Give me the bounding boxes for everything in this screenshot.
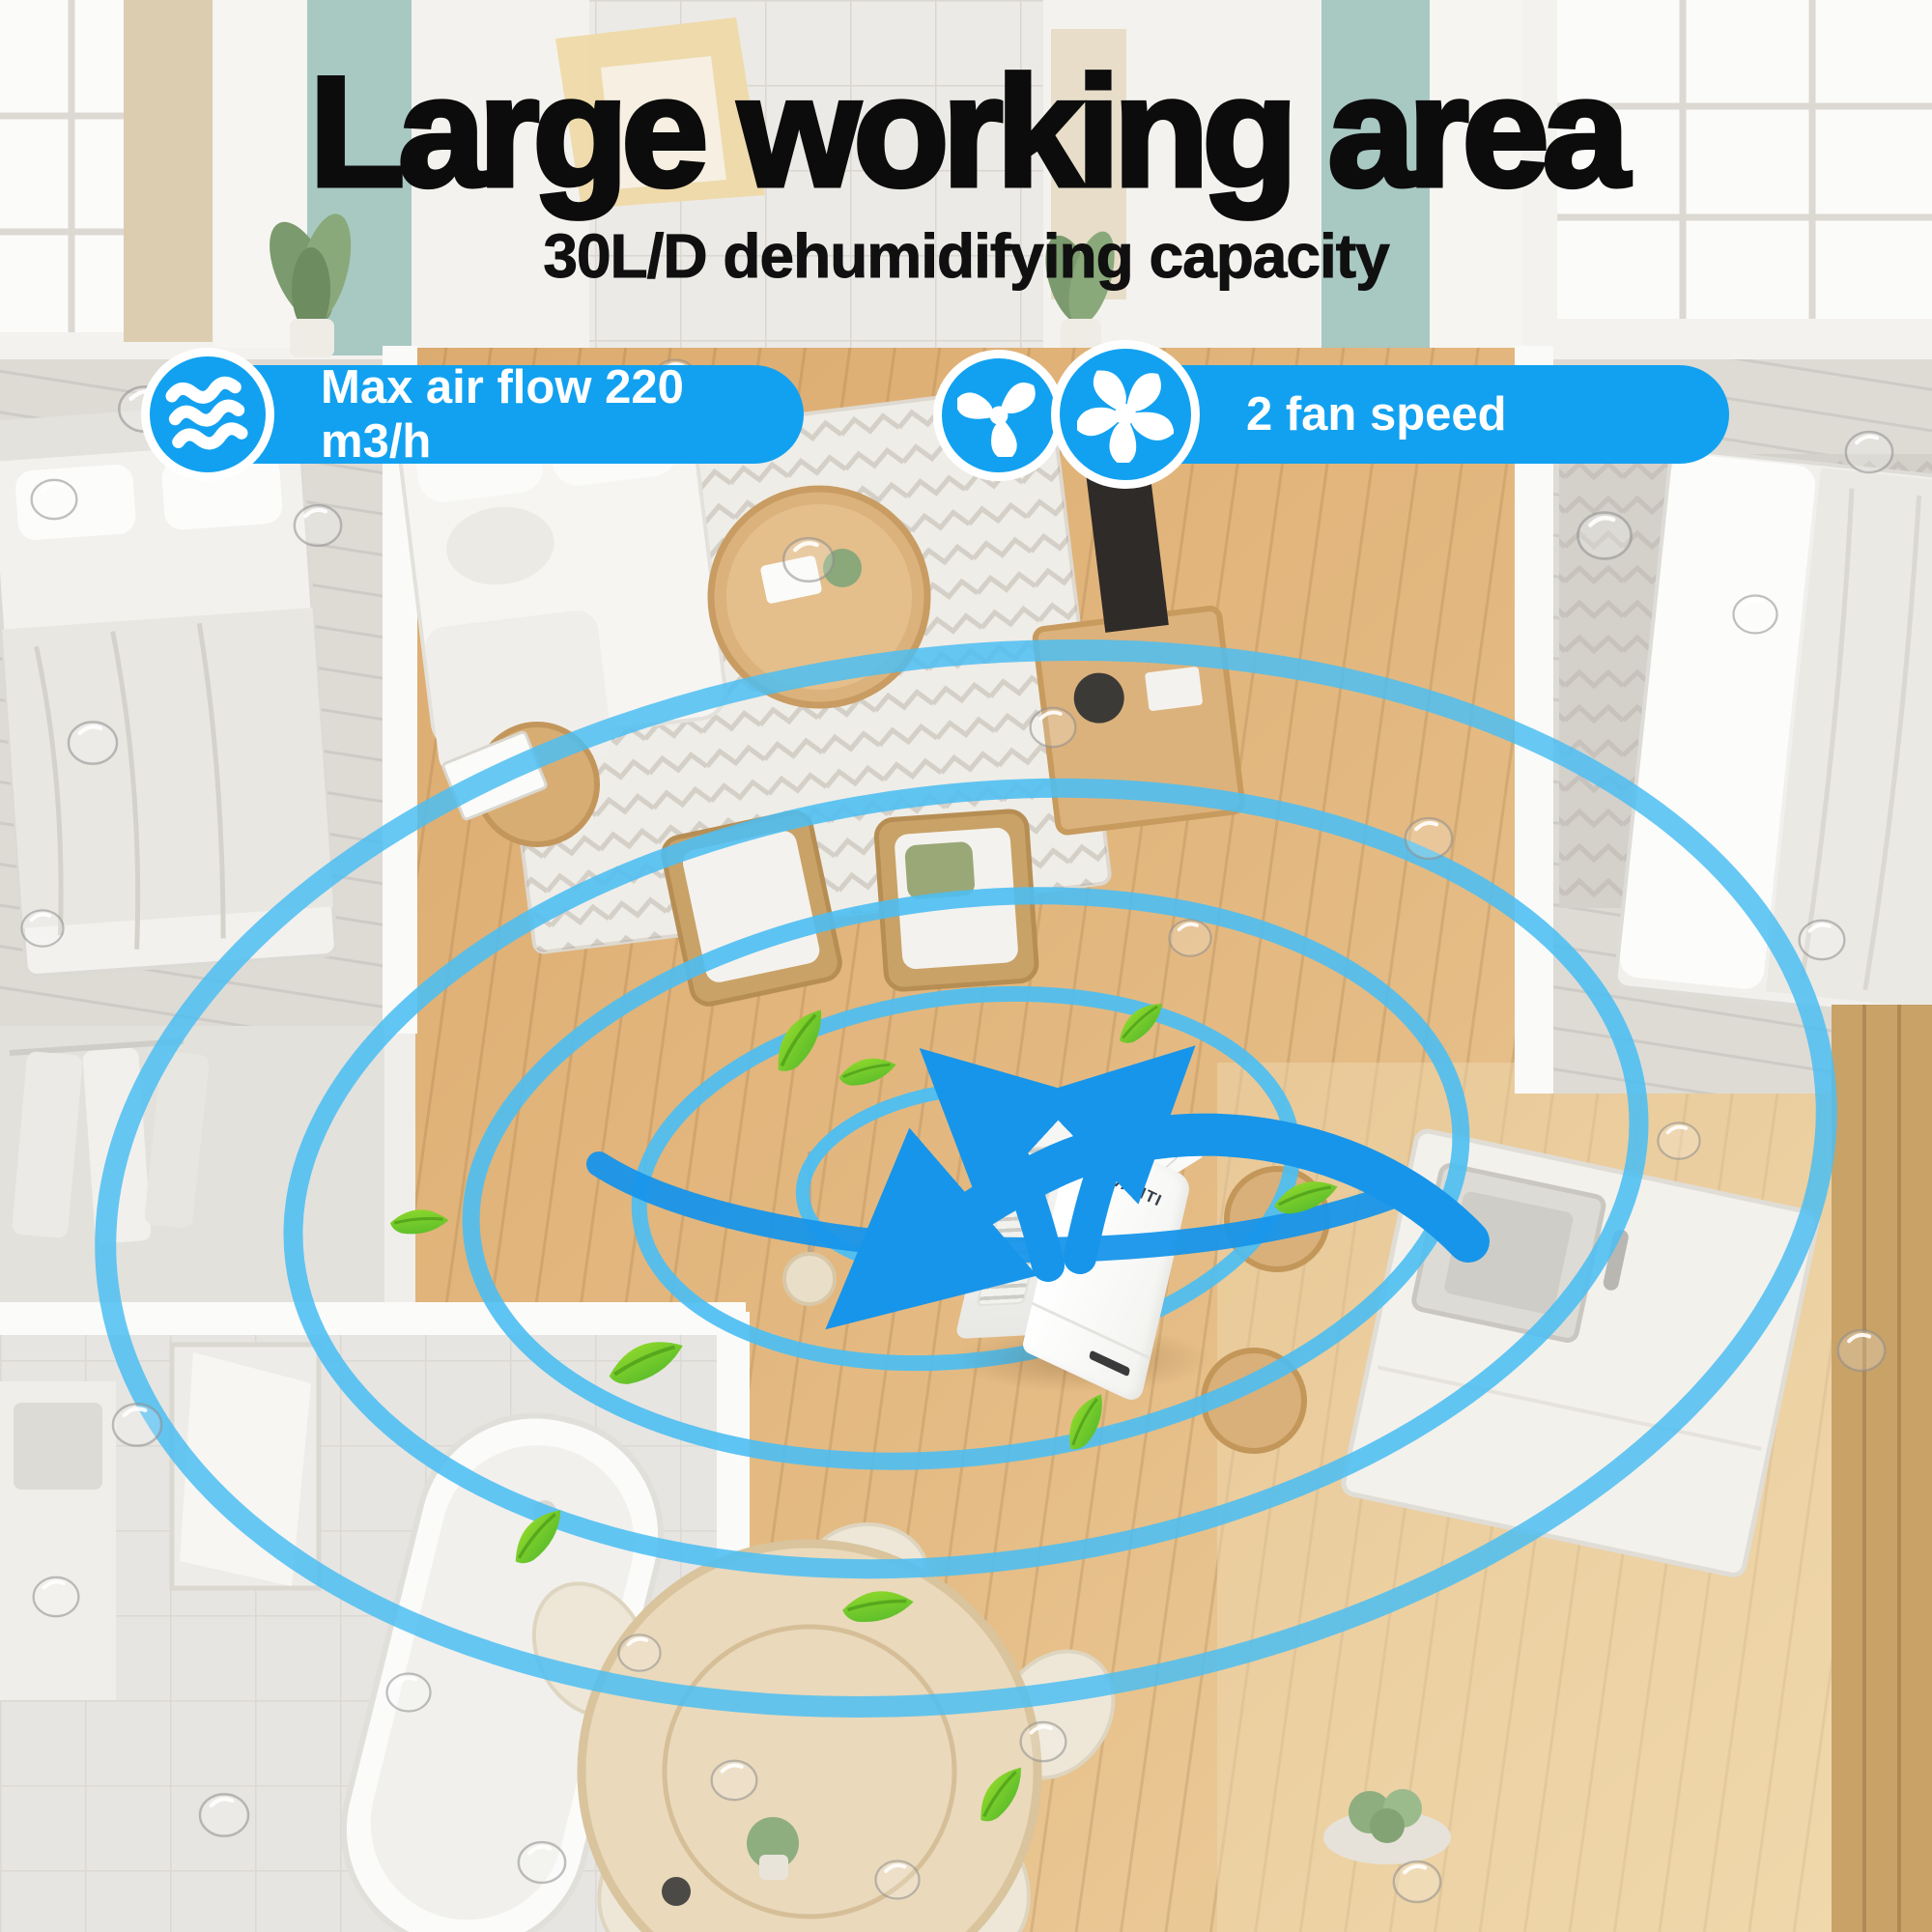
page-title: Large working area bbox=[0, 50, 1932, 214]
header: Large working area 30L/D dehumidifying c… bbox=[0, 50, 1932, 292]
fan-three-blade-icon bbox=[957, 374, 1040, 457]
air-flow-wave-icon bbox=[165, 376, 250, 453]
page-subtitle: 30L/D dehumidifying capacity bbox=[0, 220, 1932, 292]
fan-badge-circle-1 bbox=[933, 350, 1065, 481]
airflow-badge: Max air flow 220 m3/h bbox=[243, 365, 804, 464]
dehumidifier-promo-image: DEVANTI bbox=[0, 0, 1932, 1932]
fan-speed-badge-label: 2 fan speed bbox=[1246, 387, 1507, 441]
fan-five-blade-icon bbox=[1077, 366, 1174, 463]
fan-speed-badge: 2 fan speed bbox=[1119, 365, 1729, 464]
arrow-set bbox=[599, 1082, 1468, 1285]
airflow-badge-circle bbox=[141, 348, 274, 481]
fan-badge-circle-2 bbox=[1051, 340, 1200, 489]
airflow-badge-label: Max air flow 220 m3/h bbox=[321, 360, 804, 469]
